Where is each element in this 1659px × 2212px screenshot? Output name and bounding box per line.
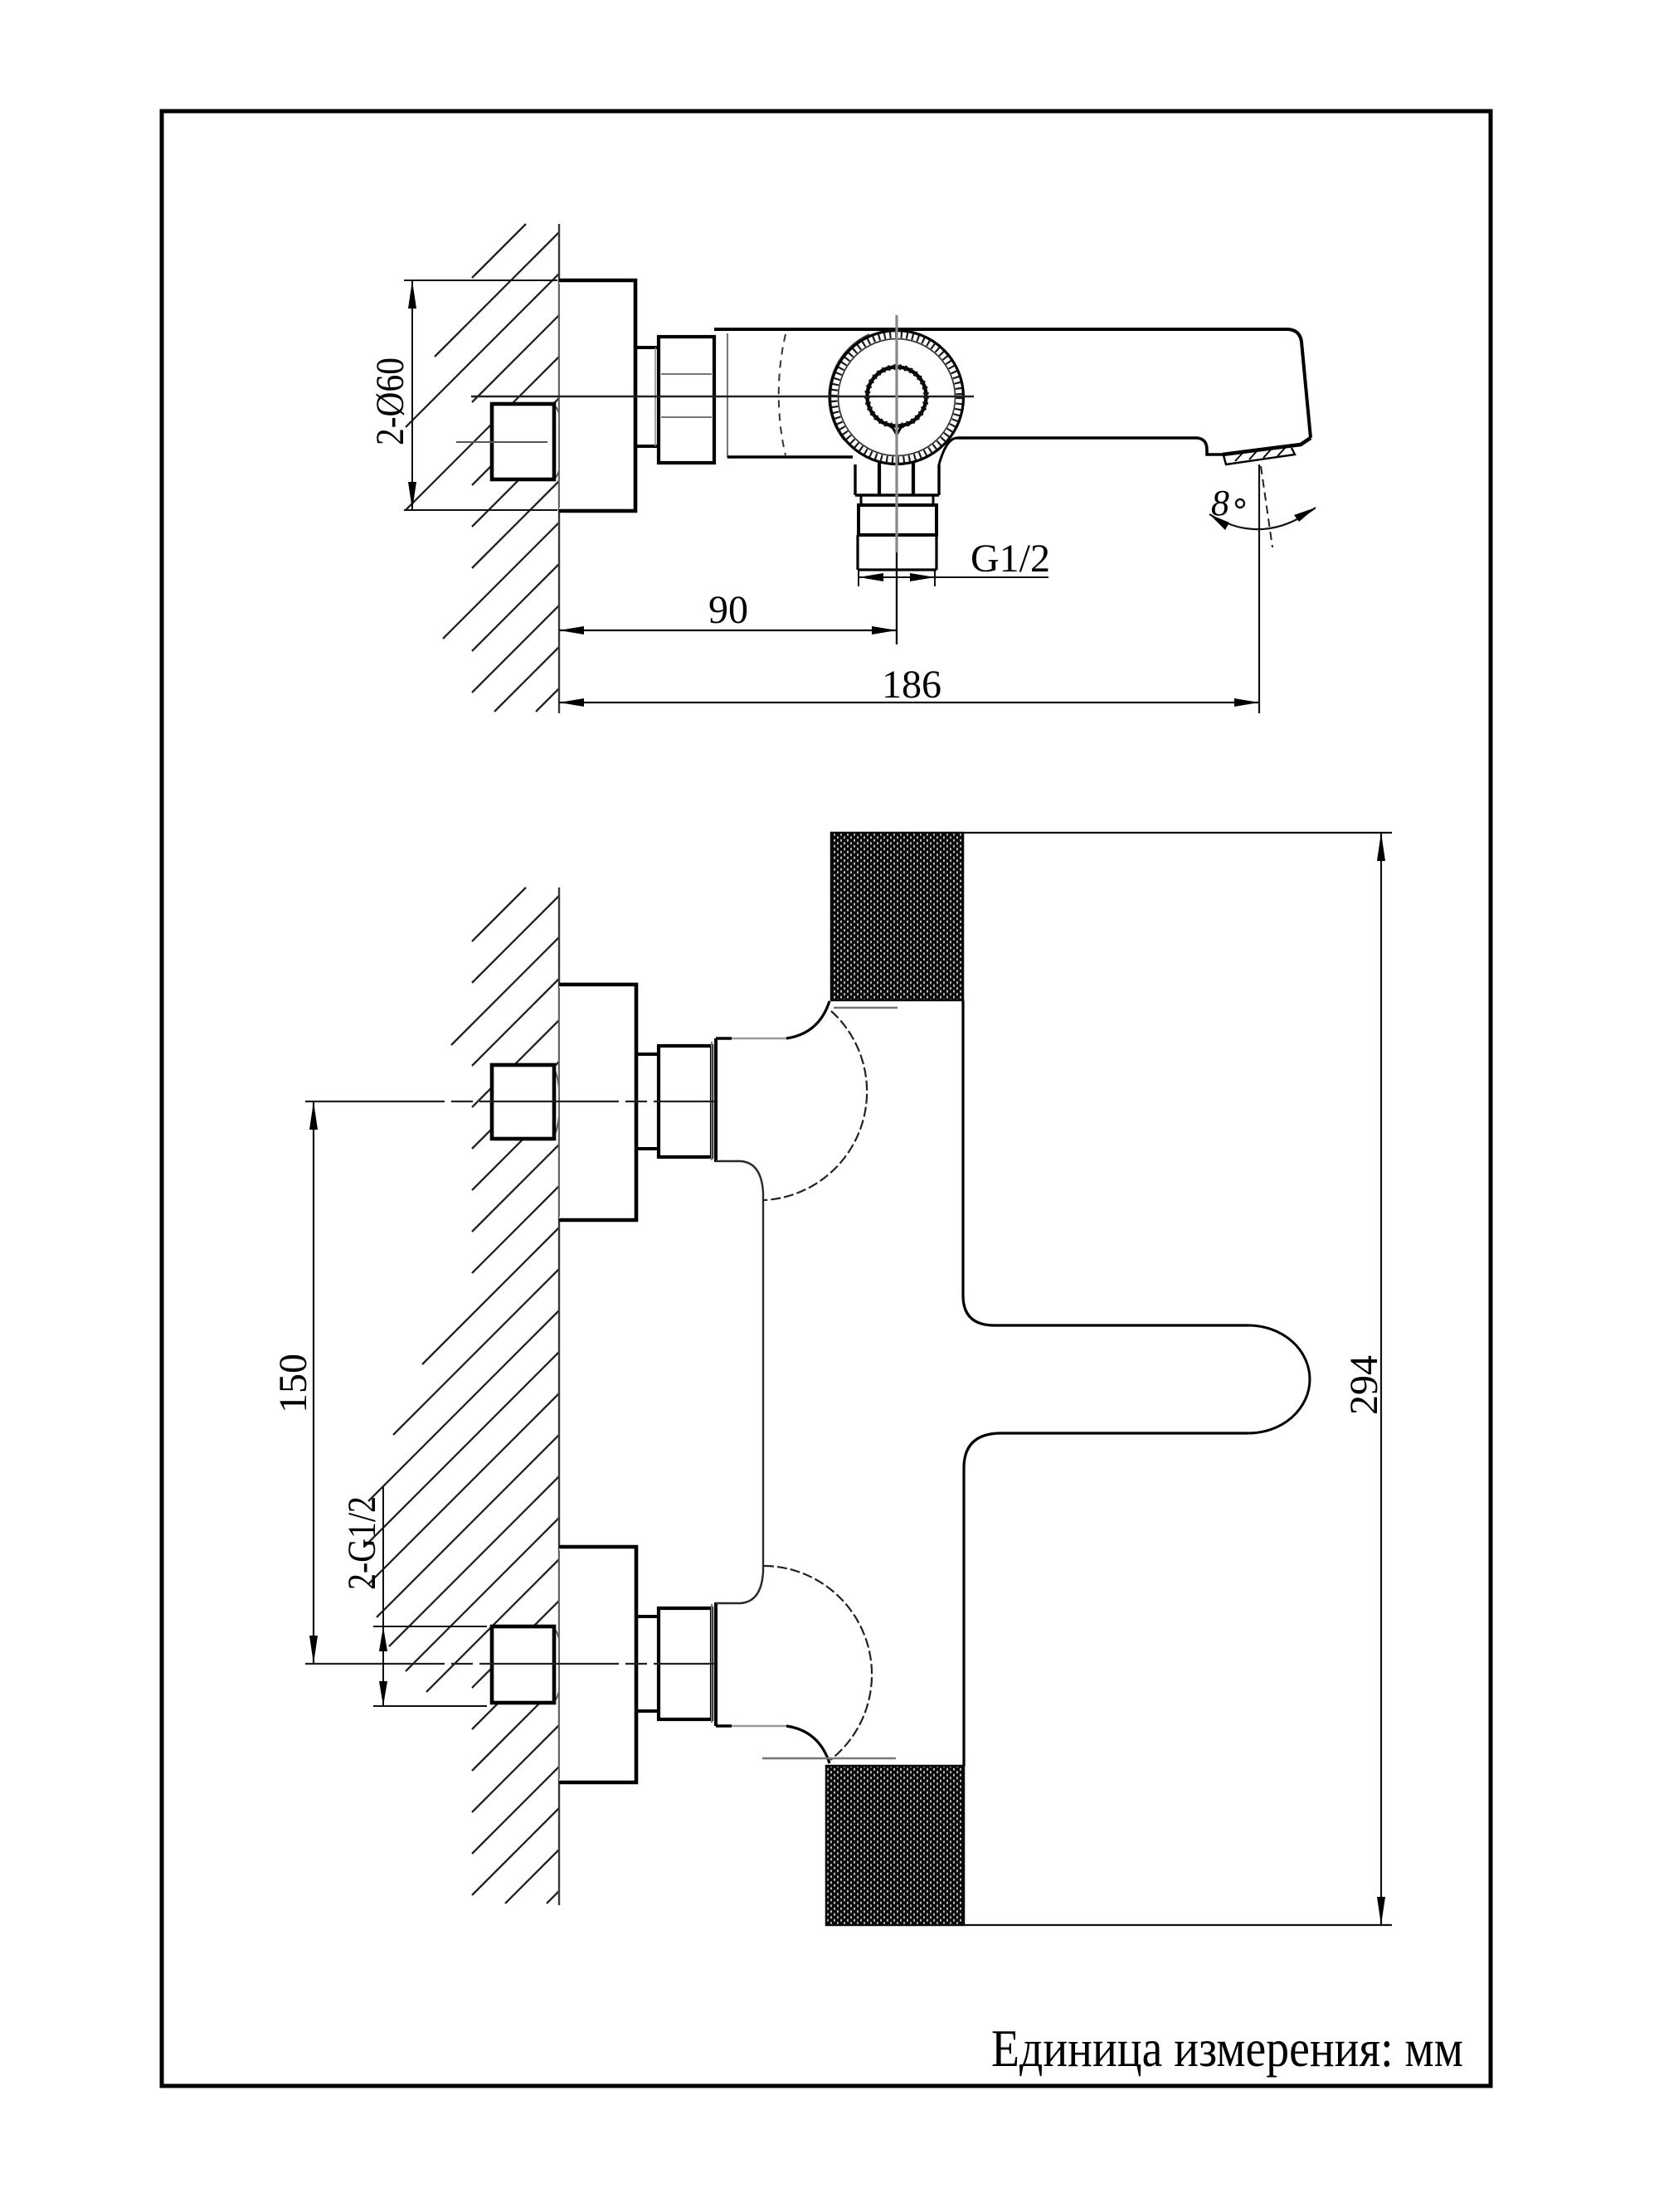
svg-text:Единица измерения: мм: Единица измерения: мм [991,2020,1463,2078]
svg-text:294: 294 [1342,1355,1386,1415]
svg-text:90: 90 [708,588,748,632]
svg-text:G1/2: G1/2 [971,537,1050,581]
svg-text:8: 8 [1211,483,1229,523]
svg-text:2-Ø60: 2-Ø60 [368,357,412,445]
svg-text:186: 186 [882,663,941,707]
svg-text:150: 150 [271,1354,315,1413]
svg-text:2-G1/2: 2-G1/2 [340,1496,384,1590]
